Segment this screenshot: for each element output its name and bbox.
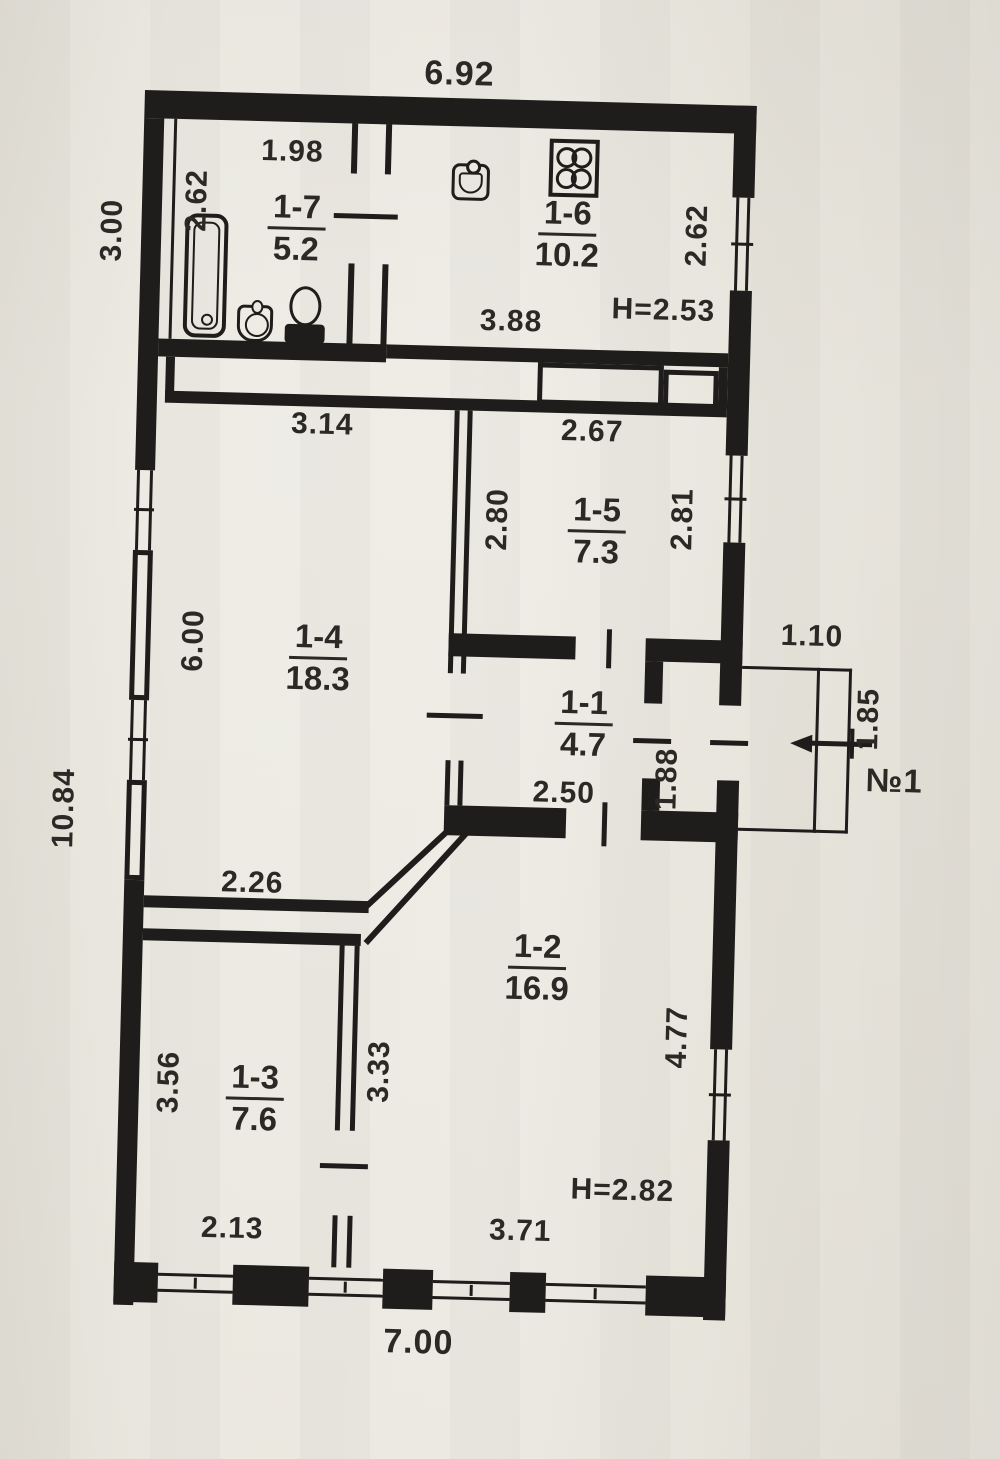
door-tick-room14 [427, 713, 483, 719]
window-bottom-2 [308, 1293, 382, 1298]
dim-kitchen-width: 3.88 [479, 304, 542, 340]
dim-bottom-width: 7.00 [383, 1322, 454, 1363]
dim-r13-right: 3.33 [362, 1040, 398, 1103]
dim-porch-depth: 1.85 [851, 688, 887, 751]
wall-partition-bath-kitchen [351, 123, 358, 173]
wall-11-top [448, 633, 576, 659]
dim-r12-right: 4.77 [660, 1006, 696, 1069]
room-label-1-5: 1-5 7.3 [567, 492, 627, 570]
dim-r15-width: 2.67 [561, 414, 624, 450]
window-bottom-3 [432, 1296, 509, 1301]
wall-exterior-bottom [645, 1276, 726, 1318]
scanned-floor-plan-page: { "theme": { "paper": "#ebe8df", "ink": … [0, 0, 1000, 1459]
dim-top-width: 6.92 [424, 54, 495, 95]
window-kitchen-tick [731, 242, 753, 246]
window-left-2-tick [128, 738, 148, 742]
wall-pier-left [129, 550, 153, 700]
dim-r15-left: 2.80 [480, 488, 516, 551]
wall-divider-14-11 [444, 760, 450, 805]
dim-left-top-height: 3.00 [95, 199, 131, 262]
toilet-icon [289, 286, 322, 327]
wall-11-top [645, 638, 743, 664]
wall-13-right [335, 945, 345, 1130]
porch-number: №1 [865, 761, 923, 800]
bathtub-icon [183, 213, 229, 338]
stove-icon [548, 139, 600, 198]
room-label-1-2: 1-2 16.9 [504, 929, 570, 1007]
wall-exterior-bottom [382, 1269, 433, 1310]
dim-bath-width: 1.98 [261, 134, 324, 170]
dim-kitchen-ceiling: H=2.53 [611, 292, 715, 329]
dim-porch-width: 1.10 [780, 619, 843, 655]
wall-partition-bath-kitchen [380, 264, 388, 346]
kitchen-sink-icon [451, 163, 490, 201]
dim-r13-left: 3.56 [151, 1050, 187, 1113]
wall-11-right [644, 661, 663, 703]
window-room15-tick [724, 497, 746, 501]
washbasin-icon [236, 304, 273, 342]
window-bottom-1 [158, 1289, 233, 1294]
window-bottom-4 [545, 1299, 645, 1305]
window-bottom-2-tick [344, 1282, 347, 1293]
dim-left-total-height: 10.84 [46, 768, 82, 849]
door-tick-room11-12 [601, 802, 607, 846]
wall-11-bottom [444, 805, 567, 838]
window-bottom-4-tick [594, 1288, 597, 1299]
window-room12-tick [709, 1093, 731, 1097]
dim-kitchen-height: 2.62 [680, 204, 716, 267]
dim-r15-right: 2.81 [665, 488, 701, 551]
wall-13-right [350, 946, 360, 1131]
room-label-1-3: 1-3 7.6 [225, 1059, 285, 1137]
dim-r13-top: 2.26 [221, 865, 284, 901]
wall-13-right [346, 1216, 352, 1268]
wall-exterior-right [726, 290, 752, 456]
dim-r12-ceiling: H=2.82 [570, 1173, 674, 1210]
wall-13-top [143, 928, 361, 946]
wall-connector-right [718, 367, 728, 409]
toilet-tank-icon [284, 324, 324, 344]
window-left-1-tick [134, 508, 154, 512]
door-tick-bathroom [334, 213, 398, 220]
wall-11-bottom [641, 810, 739, 843]
window-bottom-3-tick [470, 1285, 473, 1296]
dim-r13-bottom: 2.13 [201, 1211, 264, 1247]
wall-exterior-bottom [509, 1272, 546, 1313]
wall-exterior-bottom [232, 1265, 309, 1307]
wall-divider-14-11 [457, 760, 463, 805]
room-label-1-6: 1-6 10.2 [534, 195, 600, 273]
wall-partition-bath-kitchen [346, 263, 354, 345]
room-label-1-1: 1-1 4.7 [554, 685, 614, 763]
dim-r12-bottom: 3.71 [489, 1213, 552, 1249]
wall-13-right [331, 1215, 337, 1267]
wall-partition-bath-kitchen [385, 124, 392, 174]
door-tick-entrance-inner [633, 738, 671, 744]
entrance-arrow-icon [790, 734, 812, 753]
wall-exterior-right [732, 105, 756, 198]
dim-bath-height: 2.62 [179, 169, 215, 232]
door-tick-room15-11 [606, 629, 612, 668]
dim-r11-width: 2.50 [532, 775, 595, 811]
window-bottom-1-tick [194, 1278, 197, 1289]
wall-exterior-bottom [113, 1262, 158, 1303]
dim-r11-height: 1.88 [649, 747, 685, 810]
door-tick-room13 [320, 1163, 368, 1169]
dim-r14-height: 6.00 [176, 609, 212, 672]
wall-bathroom-inner-leaf [168, 119, 177, 339]
room-label-1-4: 1-4 18.3 [285, 619, 351, 697]
dim-r14-width: 3.14 [291, 407, 354, 443]
wall-pier-left [124, 780, 147, 880]
room-label-1-7: 1-7 5.2 [267, 189, 327, 267]
floor-plan: 1-7 5.2 1-6 10.2 1-5 7.3 1-4 18.3 1-1 4.… [113, 90, 757, 1321]
